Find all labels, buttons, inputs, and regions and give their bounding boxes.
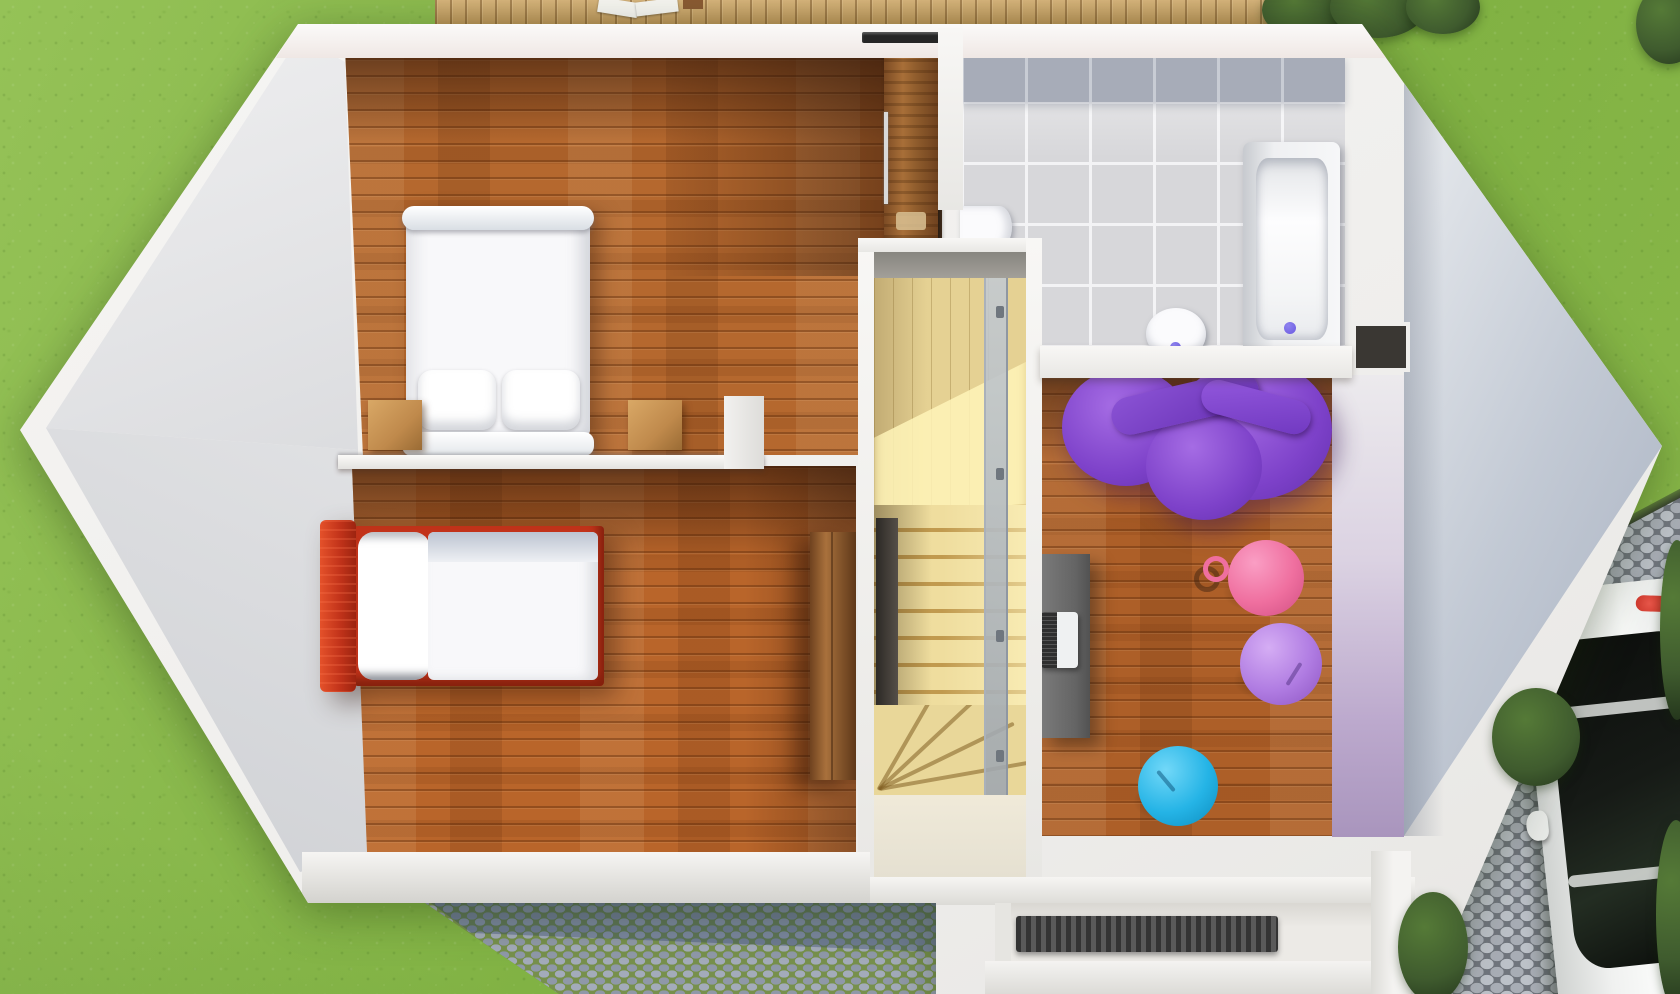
house (0, 0, 1680, 994)
wall-stairwell-right (1026, 238, 1042, 878)
door-track-slot (862, 32, 940, 43)
nightstand (628, 400, 682, 450)
sofa-lobe (1146, 412, 1262, 520)
bed-folded-edge (402, 206, 594, 230)
bush (1398, 892, 1468, 994)
bed-pillow (418, 370, 496, 430)
bed-duvet-fold (428, 532, 598, 562)
wall-bathroom-left (938, 28, 963, 210)
wall-face-right-shading (1404, 58, 1444, 836)
stair-lower-floor (874, 795, 1026, 877)
wall-stairwell-top (858, 238, 1042, 252)
blue-gym-ball (1138, 746, 1218, 826)
rail-bracket (996, 750, 1004, 762)
sliding-door-handle (884, 112, 888, 204)
bush (1492, 688, 1580, 786)
pink-gym-ball (1228, 540, 1304, 616)
rail-bracket (996, 630, 1004, 642)
lavender-gym-ball (1240, 623, 1322, 705)
doormat (1016, 916, 1278, 952)
rail-bracket (996, 306, 1004, 318)
ball-seam (1156, 770, 1176, 792)
wall-top (270, 24, 1392, 58)
stair-void (876, 518, 898, 706)
wall-bedroom-divider (338, 455, 764, 469)
bean-bag-sofa (1058, 360, 1336, 522)
bed-pillow (502, 370, 580, 430)
bathtub-basin (1256, 158, 1328, 340)
wardrobe-seam (831, 532, 833, 780)
bed-headboard-red (320, 520, 356, 692)
wall-stairwell-left (858, 238, 874, 905)
wall-niche (1352, 322, 1410, 372)
floorplan-scene (0, 0, 1680, 994)
bed-headboard (402, 432, 594, 456)
bathtub-drain (1284, 322, 1296, 334)
glass-balustrade (984, 278, 1008, 795)
laptop-keyboard (1040, 612, 1057, 668)
house-shadow-wrap (0, 0, 1680, 994)
rail-bracket (996, 468, 1004, 480)
wall-bathroom-bottom (1040, 346, 1352, 378)
wardrobe (810, 532, 856, 780)
nightstand (368, 400, 422, 450)
bed-pillow (358, 532, 430, 680)
ball-seam (1285, 662, 1302, 686)
wall-stub (724, 396, 764, 469)
sliding-door-reflection (896, 212, 926, 230)
stairwell-shadow (874, 252, 1026, 280)
ball-handle (1203, 556, 1229, 582)
wall-bottom (870, 877, 1415, 905)
porch-wall-bottom (985, 961, 1377, 994)
floor-shading (668, 58, 886, 276)
bathroom-wall-tiles (961, 56, 1345, 102)
wall-playroom-right (1332, 375, 1404, 837)
wall-bottom (302, 852, 870, 905)
